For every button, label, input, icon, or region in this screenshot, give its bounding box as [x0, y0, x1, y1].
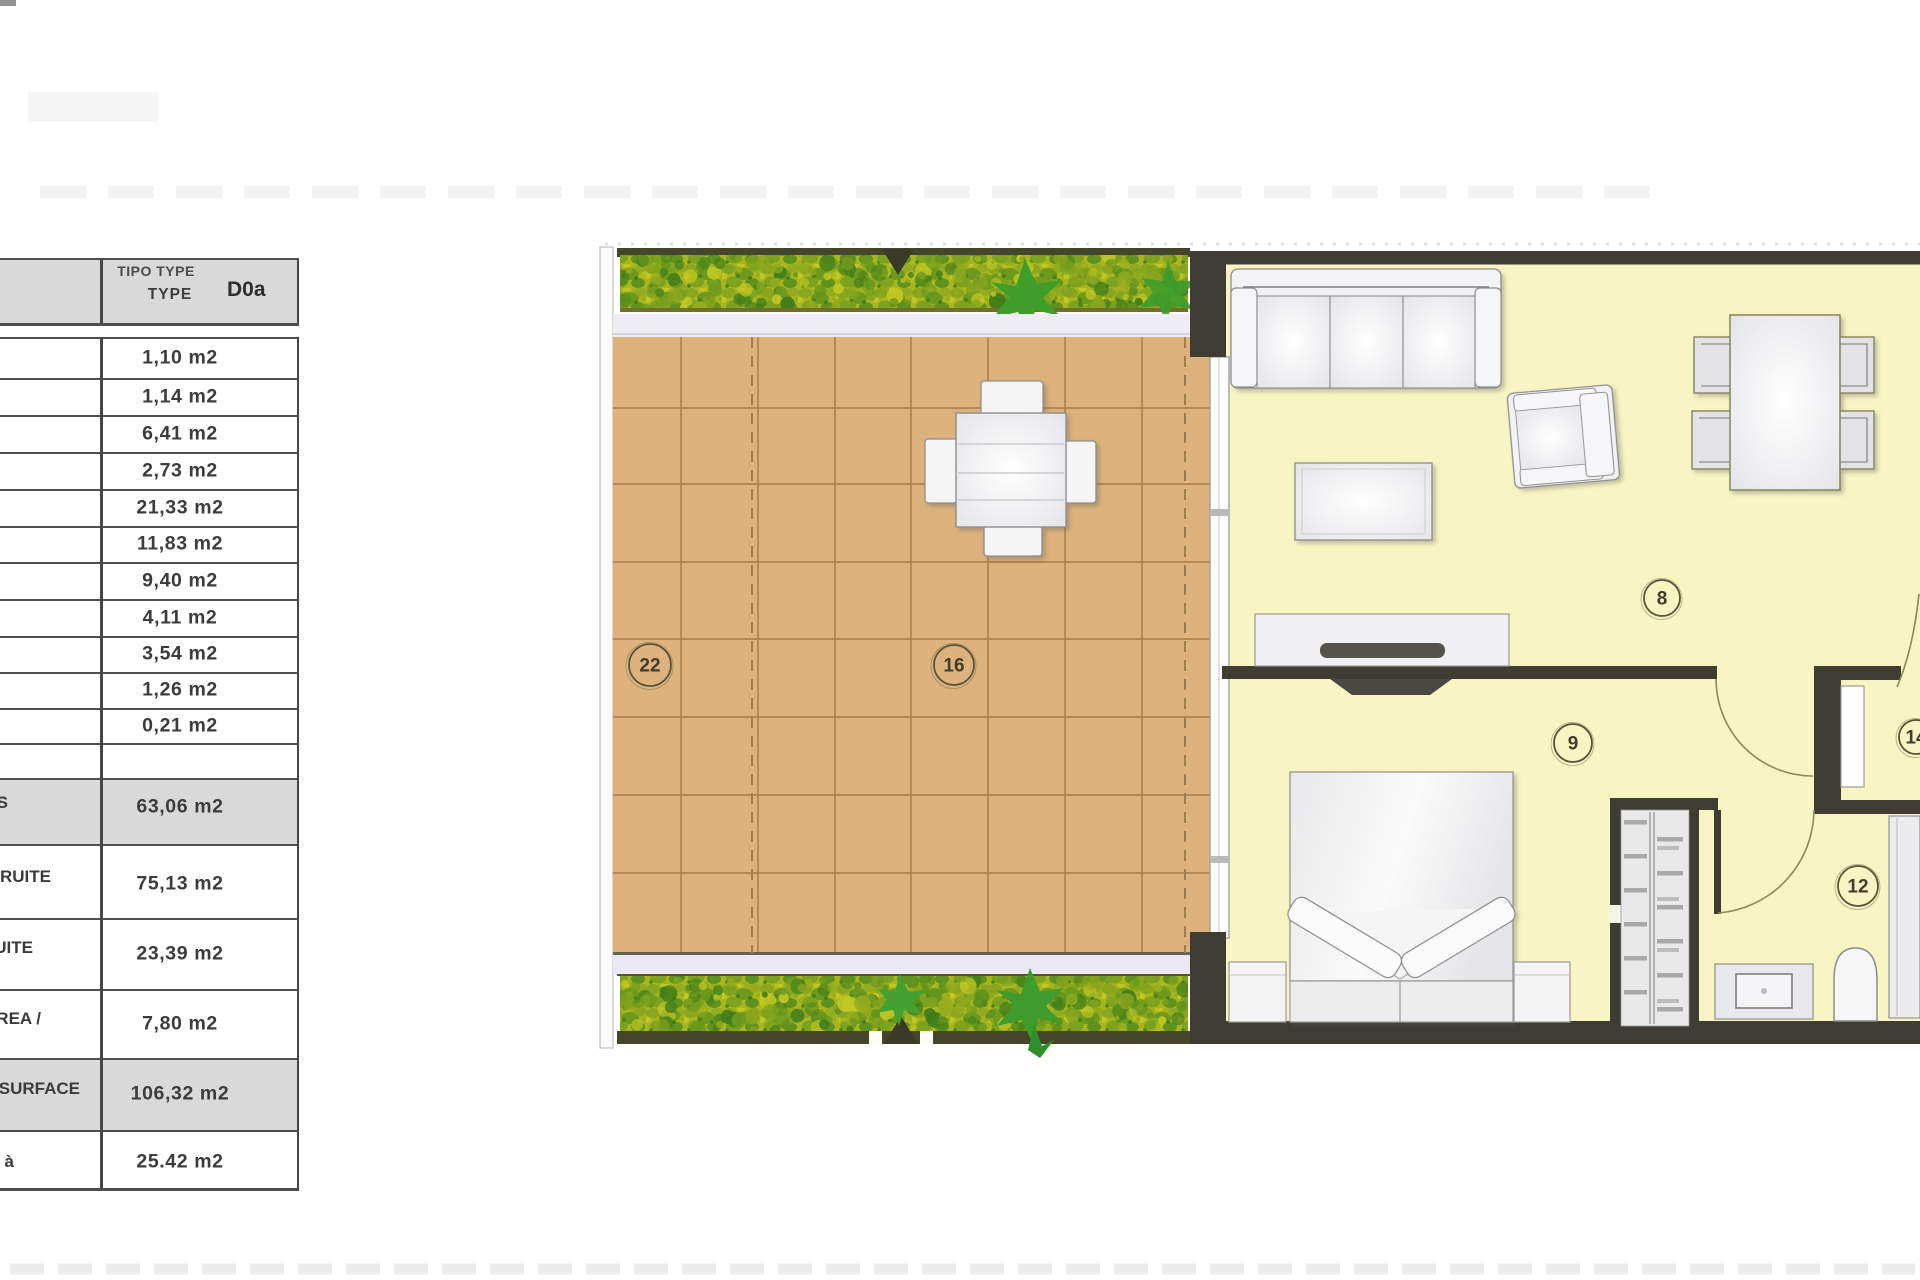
svg-text:9: 9: [1568, 734, 1579, 755]
svg-text:12: 12: [1847, 877, 1868, 898]
svg-text:8: 8: [1657, 589, 1668, 610]
svg-text:16: 16: [943, 656, 964, 677]
svg-text:22: 22: [639, 656, 660, 677]
svg-text:14: 14: [1905, 728, 1920, 749]
